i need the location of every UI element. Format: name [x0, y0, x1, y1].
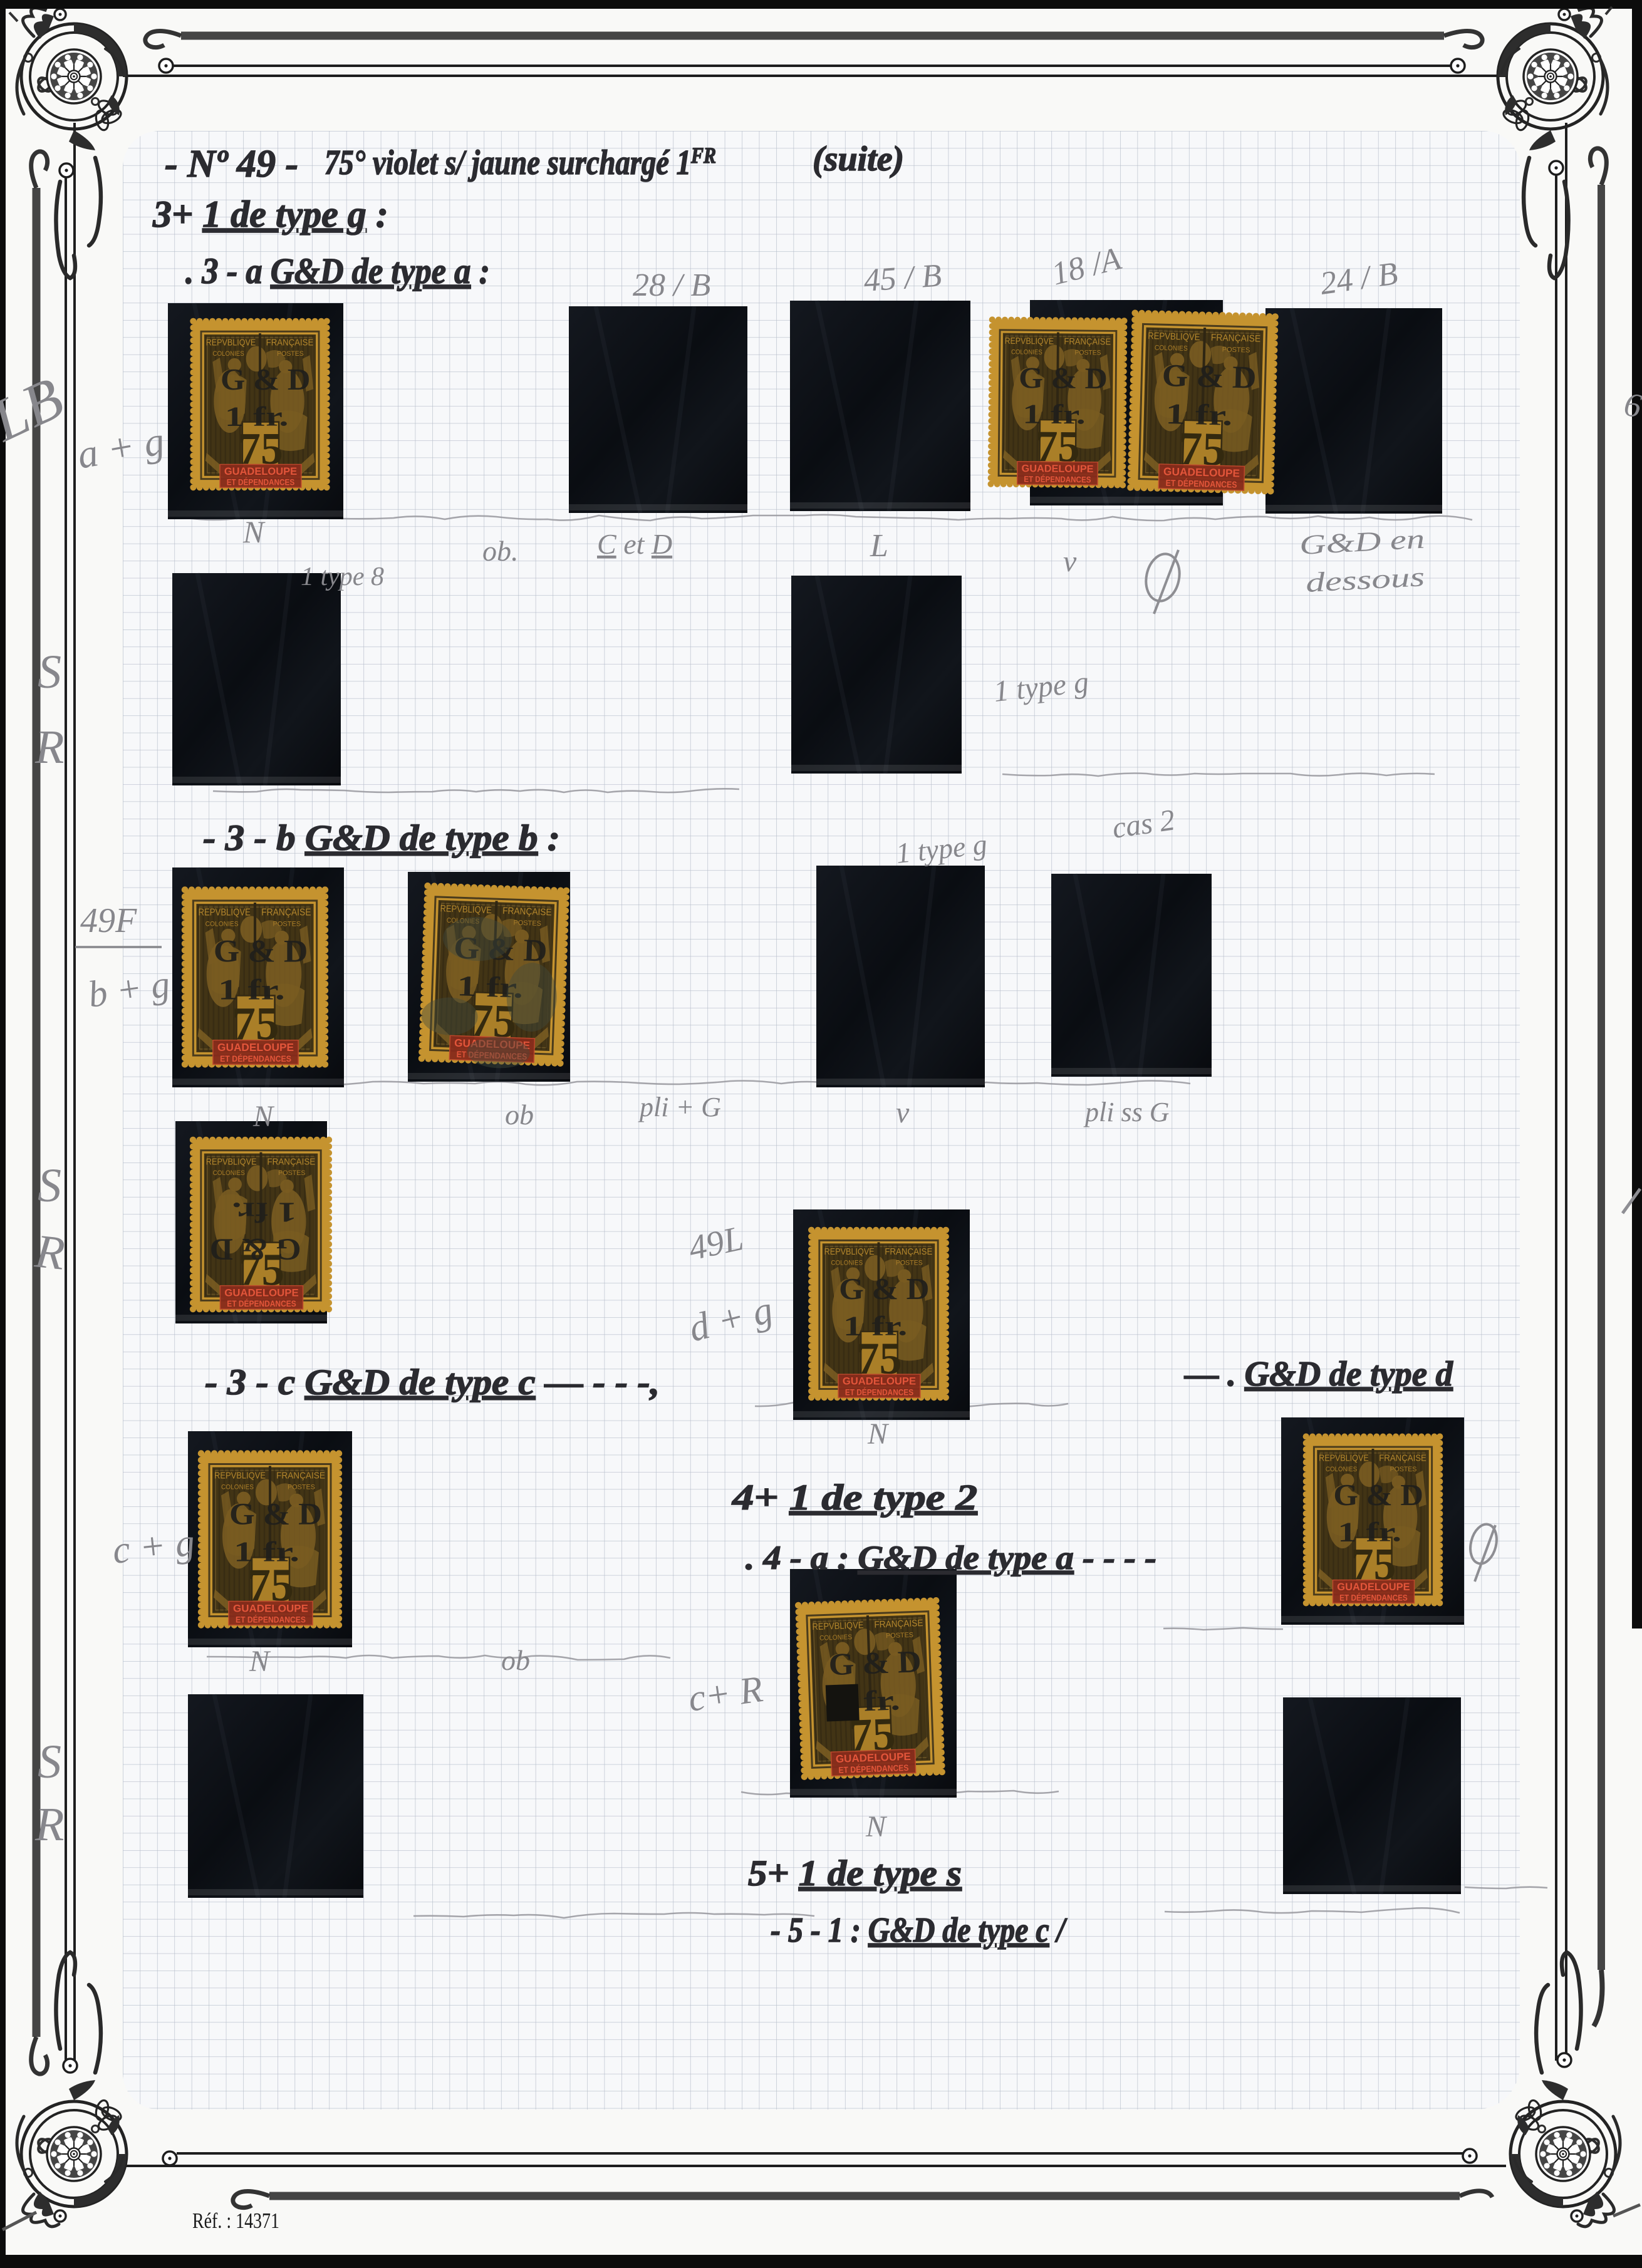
svg-text:ob: ob [501, 1644, 530, 1676]
svg-text:c + g: c + g [110, 1521, 197, 1572]
svg-text:S: S [38, 1159, 61, 1212]
svg-text:1 type 8: 1 type 8 [301, 562, 384, 591]
svg-text:. 3 - a G&D de type a :: . 3 - a G&D de type a : [185, 251, 490, 291]
svg-text:pli ss G: pli ss G [1083, 1097, 1169, 1127]
svg-text:pli + G: pli + G [638, 1092, 721, 1122]
svg-text:v: v [896, 1096, 910, 1129]
svg-text:N: N [249, 1645, 271, 1678]
svg-text:. 4 - a : G&D de type a - -: . 4 - a : G&D de type a - - - - [746, 1539, 1156, 1577]
svg-text:R: R [34, 1798, 64, 1851]
svg-text:45 / B: 45 / B [863, 257, 943, 299]
svg-text:dessous: dessous [1305, 561, 1425, 598]
svg-text:3+ 1 de type g :: 3+ 1 de type g : [152, 194, 388, 235]
svg-text:R: R [34, 721, 64, 774]
svg-text:ob.: ob. [482, 535, 519, 567]
svg-text:- Nº 49 -: - Nº 49 - [165, 143, 298, 185]
svg-text:L: L [870, 528, 888, 564]
svg-text:S: S [38, 646, 61, 698]
svg-text:Réf. : 14371: Réf. : 14371 [192, 2208, 279, 2233]
svg-text:R: R [32, 1225, 67, 1280]
svg-text:5+ 1 de type s: 5+ 1 de type s [748, 1853, 962, 1893]
svg-text:N: N [867, 1417, 890, 1451]
svg-text:C et D: C et D [597, 528, 672, 560]
svg-text:4+ 1 de type 2: 4+ 1 de type 2 [732, 1477, 977, 1518]
svg-text:S: S [38, 1736, 61, 1788]
svg-text:N: N [242, 514, 266, 549]
svg-text:49F: 49F [80, 901, 137, 940]
svg-text:- 3 - c G&D de type c — - -: - 3 - c G&D de type c — - - -, [205, 1362, 660, 1402]
svg-text:28 / B: 28 / B [633, 267, 710, 303]
svg-text:75° violet s/ jaune surchargé: 75° violet s/ jaune surchargé 1FR [325, 143, 716, 182]
svg-text:G&D en: G&D en [1299, 524, 1425, 561]
svg-text:v: v [1063, 545, 1077, 578]
svg-text:ob: ob [505, 1099, 534, 1131]
svg-text:- 5 - 1 : G&D de type c /: - 5 - 1 : G&D de type c / [771, 1911, 1068, 1950]
svg-text:— . G&D de type d: — . G&D de type d [1184, 1355, 1453, 1394]
svg-text:N: N [865, 1810, 888, 1843]
svg-text:N: N [252, 1100, 275, 1133]
svg-text:(suite): (suite) [813, 140, 904, 179]
svg-text:- 3 - b G&D de type b :: - 3 - b G&D de type b : [203, 817, 560, 858]
